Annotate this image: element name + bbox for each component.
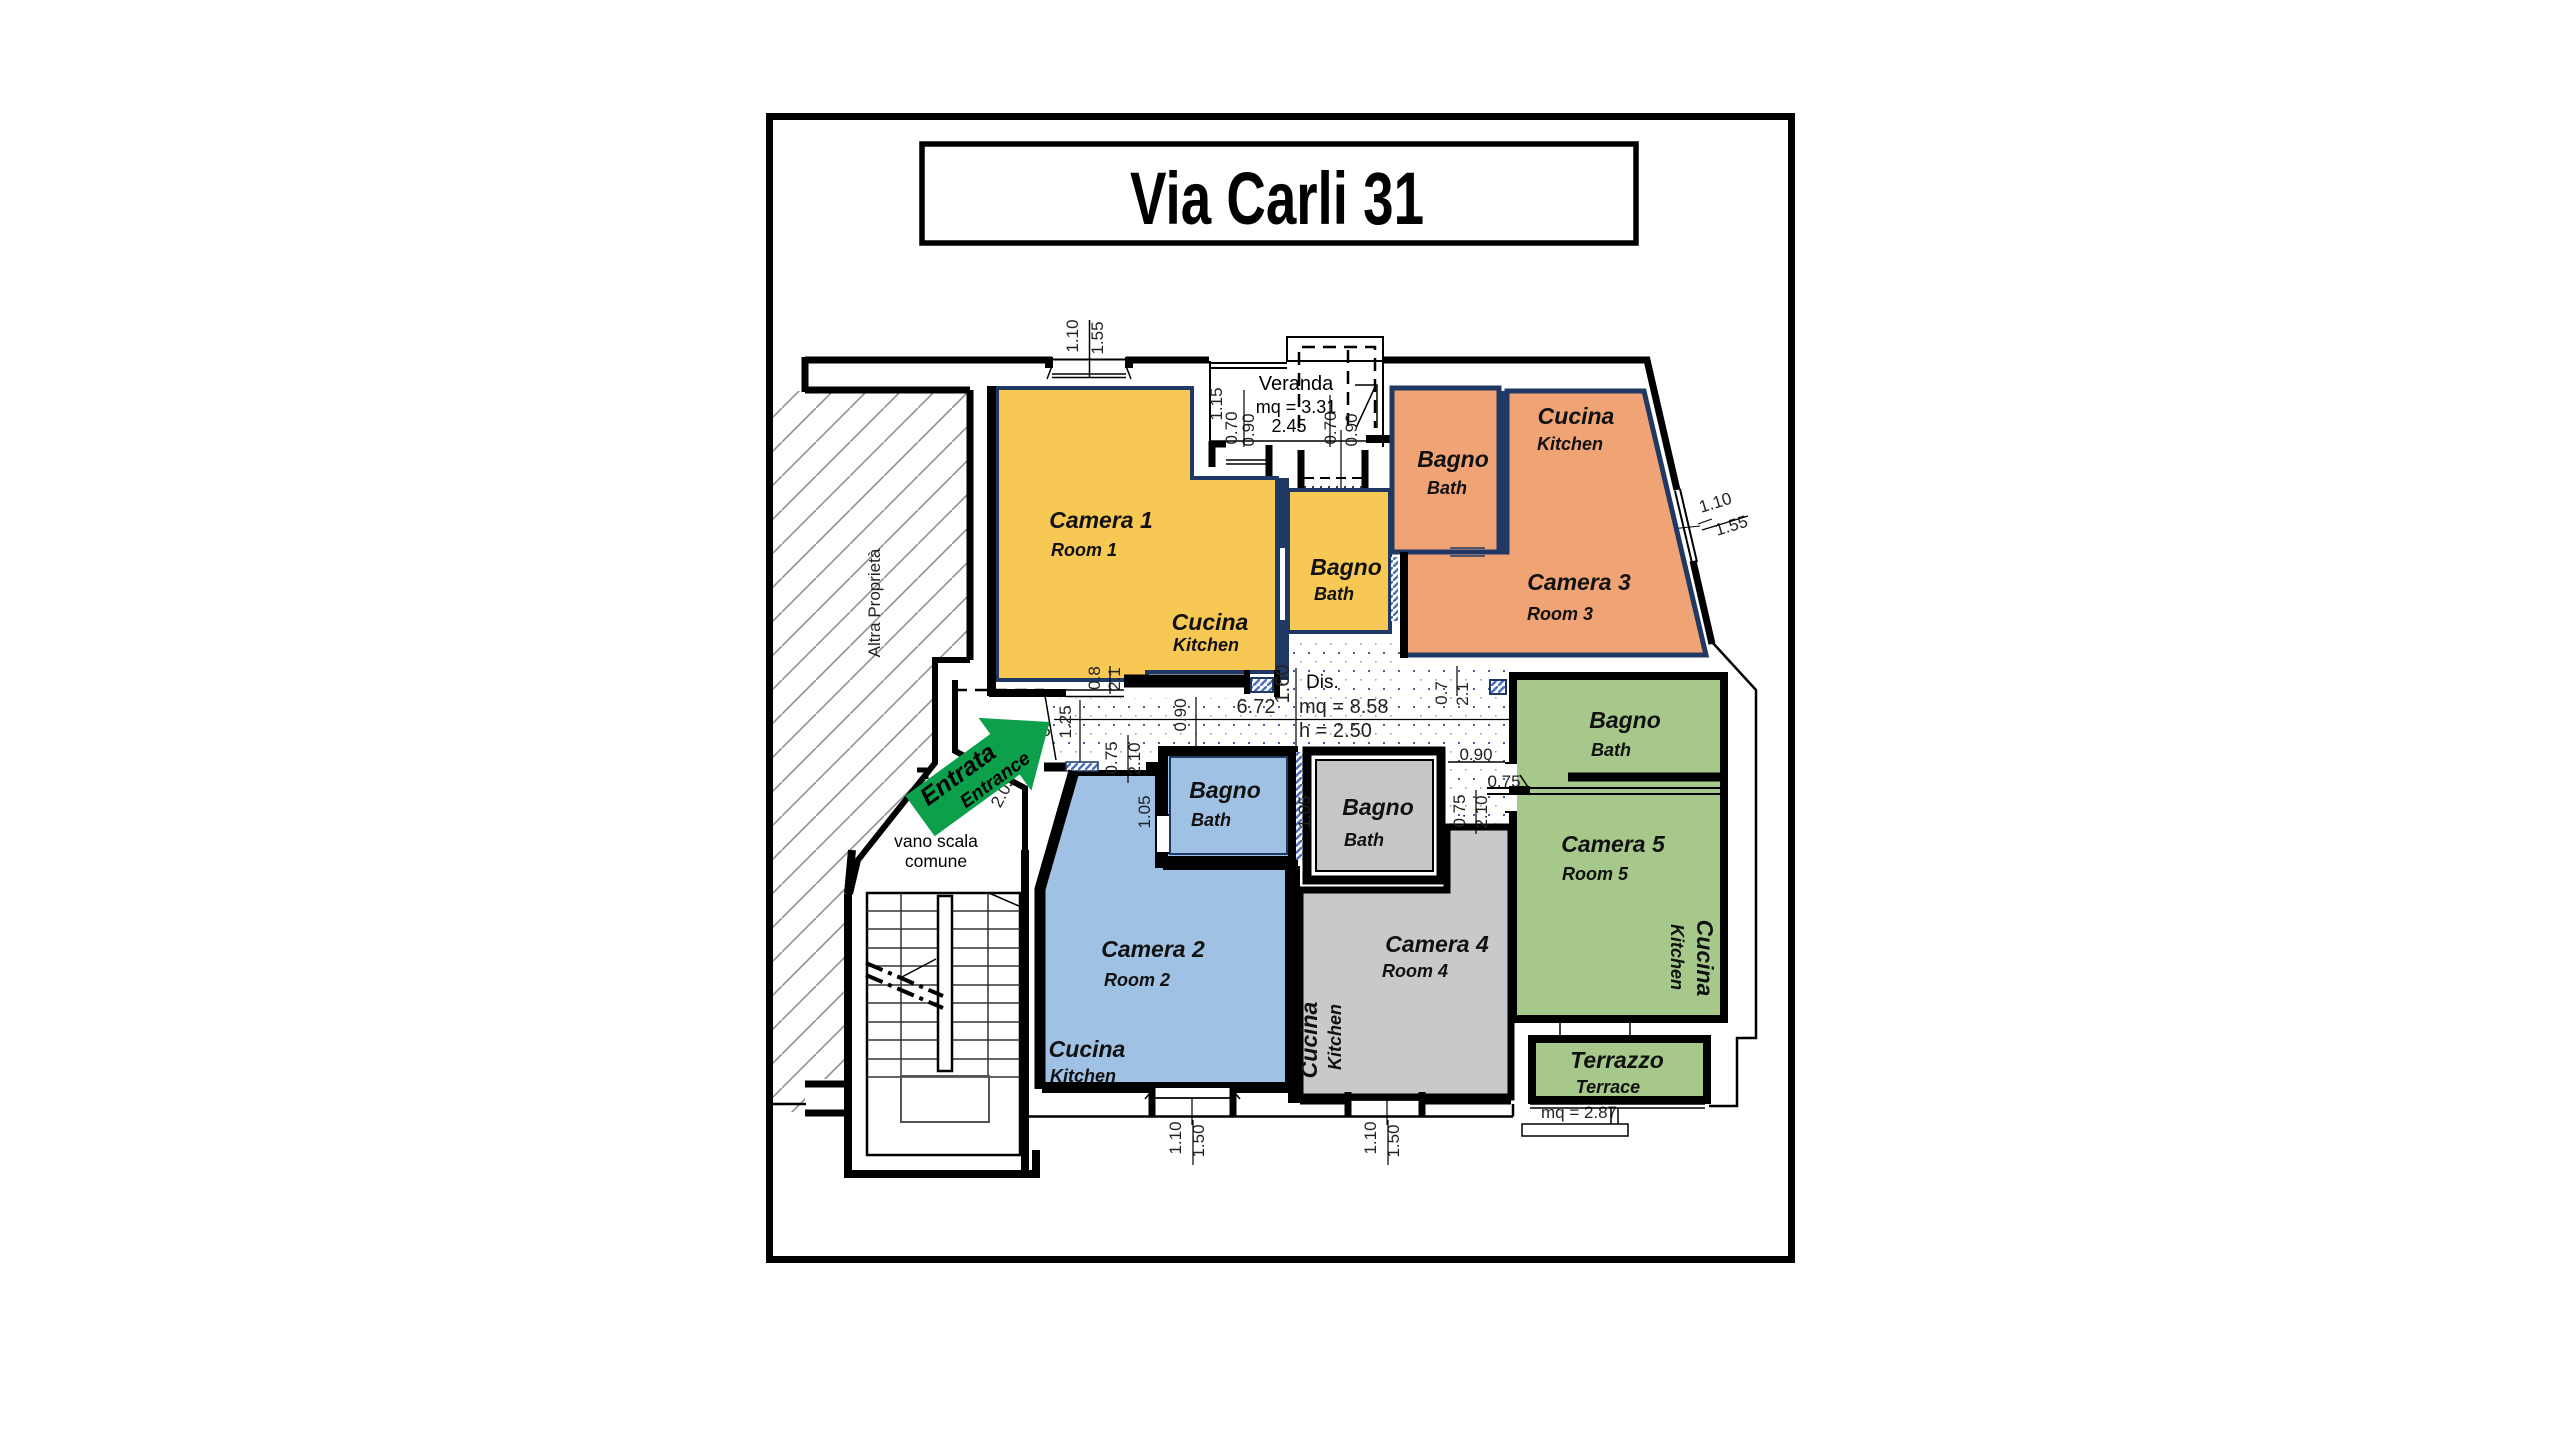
svg-text:mq = 2.87: mq = 2.87 (1541, 1103, 1617, 1122)
svg-text:2.10: 2.10 (1472, 795, 1491, 828)
svg-text:Kitchen: Kitchen (1050, 1066, 1116, 1086)
svg-text:Cucina: Cucina (1049, 1036, 1126, 1062)
svg-text:Kitchen: Kitchen (1667, 924, 1687, 990)
svg-text:Room 4: Room 4 (1382, 961, 1448, 981)
svg-text:Bath: Bath (1591, 740, 1631, 760)
svg-text:6.72: 6.72 (1237, 696, 1276, 718)
svg-text:Cucina: Cucina (1538, 403, 1615, 429)
svg-text:Bagno: Bagno (1310, 554, 1382, 580)
svg-text:Terrazzo: Terrazzo (1570, 1047, 1664, 1073)
svg-text:1.50: 1.50 (1189, 1124, 1208, 1157)
svg-text:2.1: 2.1 (1453, 682, 1472, 706)
svg-text:1.55: 1.55 (1088, 321, 1107, 354)
svg-text:Camera 2: Camera 2 (1101, 936, 1205, 962)
svg-text:0.75: 0.75 (1450, 794, 1469, 827)
svg-text:Veranda: Veranda (1259, 373, 1334, 395)
svg-text:Bagno: Bagno (1589, 707, 1661, 733)
svg-text:2.45: 2.45 (1271, 416, 1306, 436)
svg-text:1.05: 1.05 (1295, 795, 1314, 828)
svg-text:Bath: Bath (1191, 810, 1231, 830)
svg-text:Bagno: Bagno (1417, 446, 1489, 472)
svg-text:Bath: Bath (1344, 830, 1384, 850)
svg-text:0.90: 0.90 (1239, 413, 1258, 446)
svg-text:0.90: 0.90 (1171, 698, 1190, 731)
svg-text:Cucina: Cucina (1692, 920, 1718, 997)
svg-text:1.05: 1.05 (1135, 795, 1154, 828)
svg-text:2.1: 2.1 (1105, 667, 1124, 691)
svg-text:Room 2: Room 2 (1104, 970, 1170, 990)
svg-text:mq = 8.58: mq = 8.58 (1299, 696, 1389, 718)
svg-text:0.90: 0.90 (1342, 413, 1361, 446)
svg-text:1.60: 1.60 (1272, 665, 1294, 704)
svg-text:Kitchen: Kitchen (1173, 635, 1239, 655)
svg-text:Camera 1: Camera 1 (1049, 507, 1153, 533)
svg-text:0.75: 0.75 (1487, 772, 1520, 791)
svg-text:1.10: 1.10 (1361, 1121, 1380, 1154)
svg-text:Altra Proprietà: Altra Proprietà (865, 548, 884, 657)
svg-text:Kitchen: Kitchen (1325, 1004, 1345, 1070)
svg-text:Cucina: Cucina (1172, 609, 1249, 635)
svg-text:Terrace: Terrace (1576, 1077, 1640, 1097)
svg-text:1.10: 1.10 (1063, 319, 1082, 352)
svg-text:0.75: 0.75 (1102, 741, 1121, 774)
svg-text:Room 3: Room 3 (1527, 604, 1593, 624)
svg-text:Bagno: Bagno (1342, 794, 1414, 820)
svg-text:0.90: 0.90 (1459, 745, 1492, 764)
svg-text:Kitchen: Kitchen (1537, 434, 1603, 454)
svg-text:Dis.: Dis. (1306, 672, 1339, 693)
svg-text:0.8: 0.8 (1085, 666, 1104, 690)
svg-text:0.7: 0.7 (1432, 681, 1451, 705)
svg-text:Via Carli 31: Via Carli 31 (1130, 157, 1424, 240)
svg-text:Camera 4: Camera 4 (1385, 931, 1489, 957)
svg-text:Bagno: Bagno (1189, 777, 1261, 803)
svg-text:Camera 3: Camera 3 (1527, 569, 1631, 595)
svg-text:comune: comune (905, 851, 967, 871)
svg-text:Cucina: Cucina (1296, 1001, 1322, 1078)
svg-text:1.25: 1.25 (1056, 705, 1075, 738)
svg-text:Camera 5: Camera 5 (1561, 831, 1666, 857)
svg-text:1.50: 1.50 (1384, 1124, 1403, 1157)
svg-text:Bath: Bath (1314, 584, 1354, 604)
svg-text:Room 5: Room 5 (1562, 864, 1629, 884)
svg-text:Room 1: Room 1 (1051, 540, 1117, 560)
svg-text:1.10: 1.10 (1166, 1121, 1185, 1154)
svg-text:Bath: Bath (1427, 478, 1467, 498)
svg-text:vano scala: vano scala (894, 831, 978, 851)
svg-text:h = 2.50: h = 2.50 (1299, 720, 1372, 742)
